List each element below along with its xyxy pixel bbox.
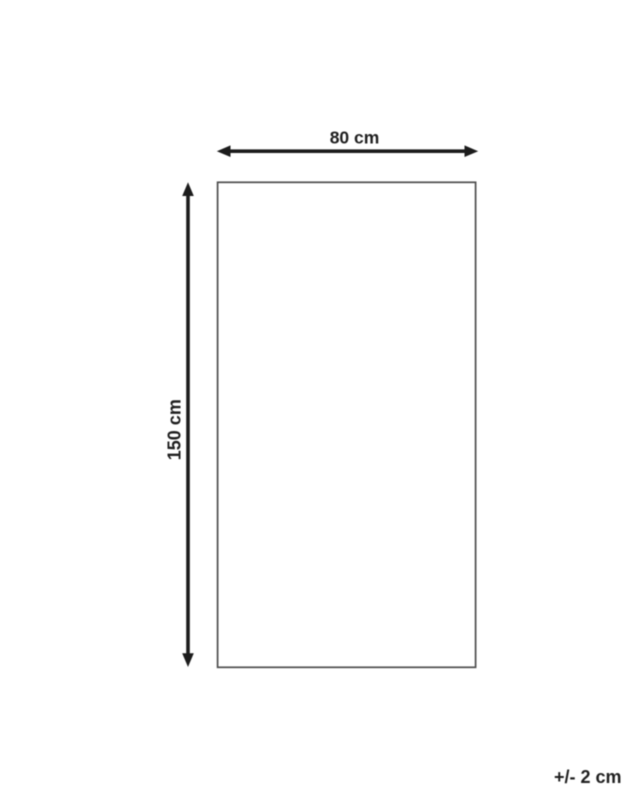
svg-text:150 cm: 150 cm	[165, 399, 185, 460]
svg-text:+/- 2 cm: +/- 2 cm	[554, 767, 622, 787]
svg-text:80 cm: 80 cm	[330, 128, 380, 148]
